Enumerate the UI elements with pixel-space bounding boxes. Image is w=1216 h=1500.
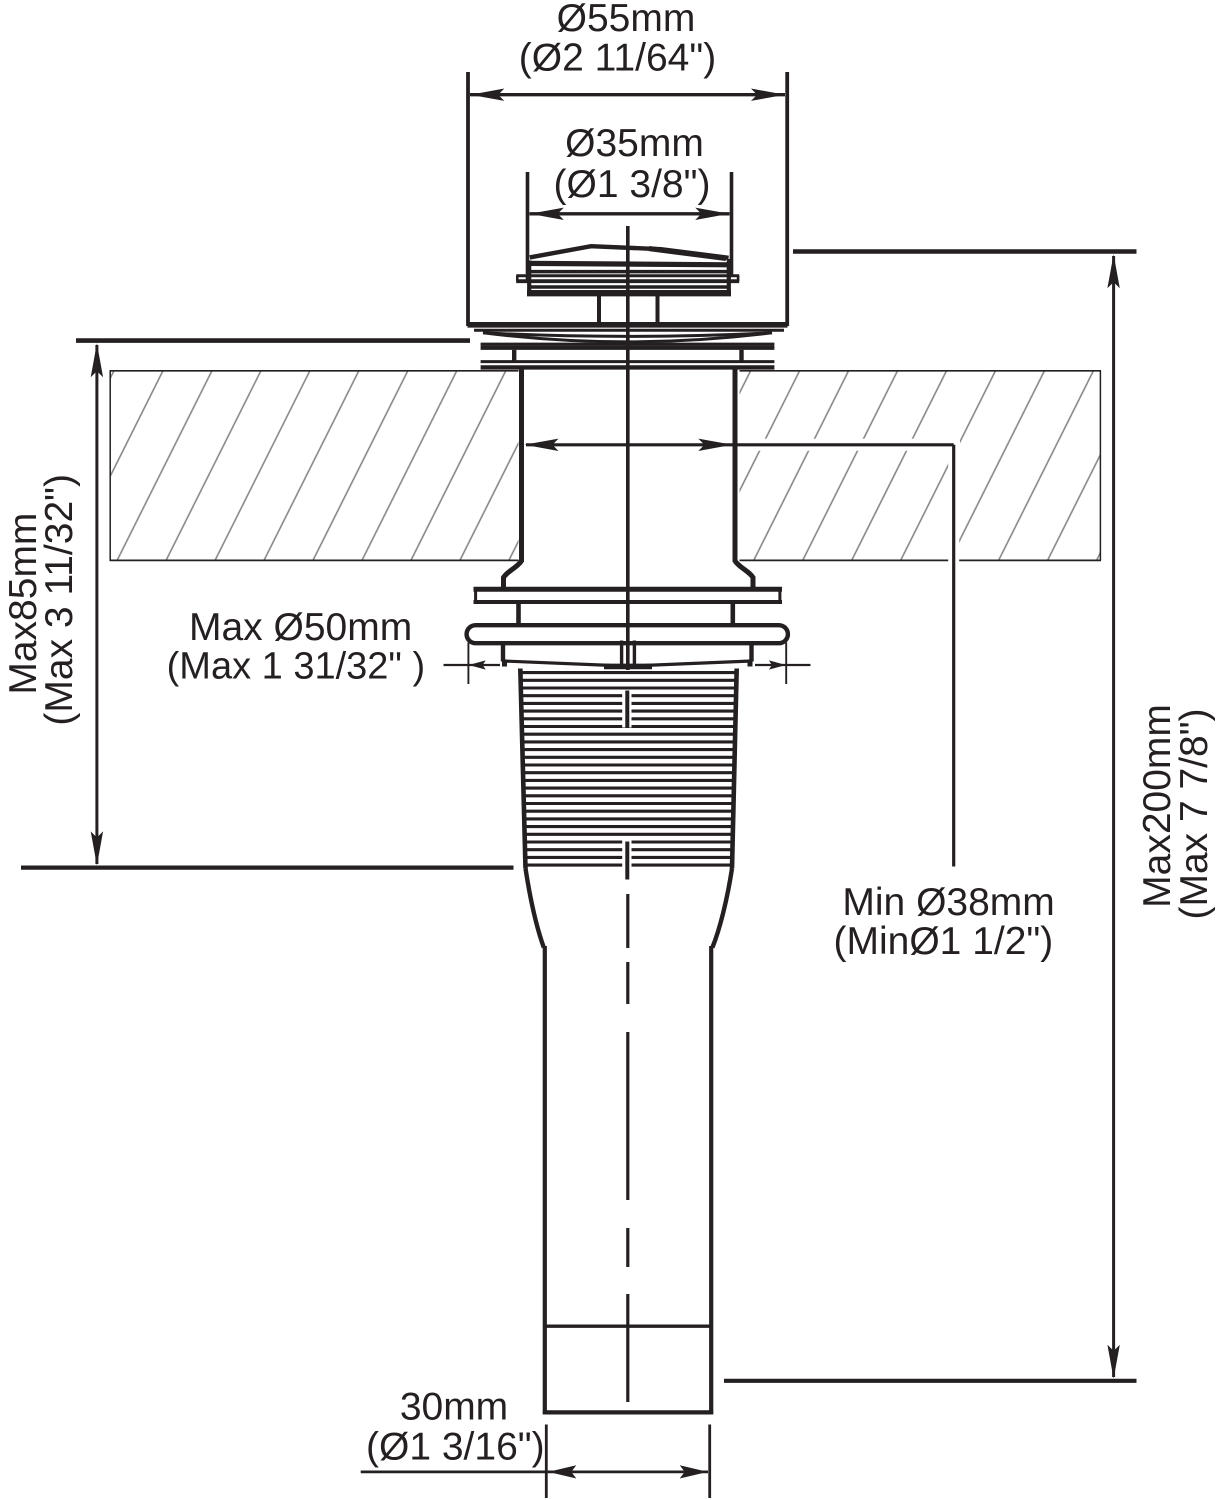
- svg-text:30mm: 30mm: [400, 1386, 508, 1429]
- svg-text:(Ø2 11/64"): (Ø2 11/64"): [519, 37, 716, 80]
- svg-text:Ø35mm: Ø35mm: [565, 122, 704, 165]
- svg-text:(Ø1 3/16"): (Ø1 3/16"): [366, 1426, 545, 1469]
- svg-text:(MinØ1 1/2"): (MinØ1 1/2"): [834, 920, 1054, 963]
- svg-text:Min Ø38mm: Min Ø38mm: [842, 881, 1054, 924]
- svg-text:(Max 7 7/8"): (Max 7 7/8"): [1173, 708, 1216, 919]
- svg-text:(Max 3 11/32"): (Max 3 11/32"): [38, 474, 81, 726]
- svg-text:(Max 1 31/32" ): (Max 1 31/32" ): [167, 646, 426, 688]
- svg-text:Max Ø50mm: Max Ø50mm: [189, 606, 412, 649]
- svg-text:Ø55mm: Ø55mm: [557, 0, 696, 40]
- svg-text:(Ø1 3/8"): (Ø1 3/8"): [554, 163, 711, 206]
